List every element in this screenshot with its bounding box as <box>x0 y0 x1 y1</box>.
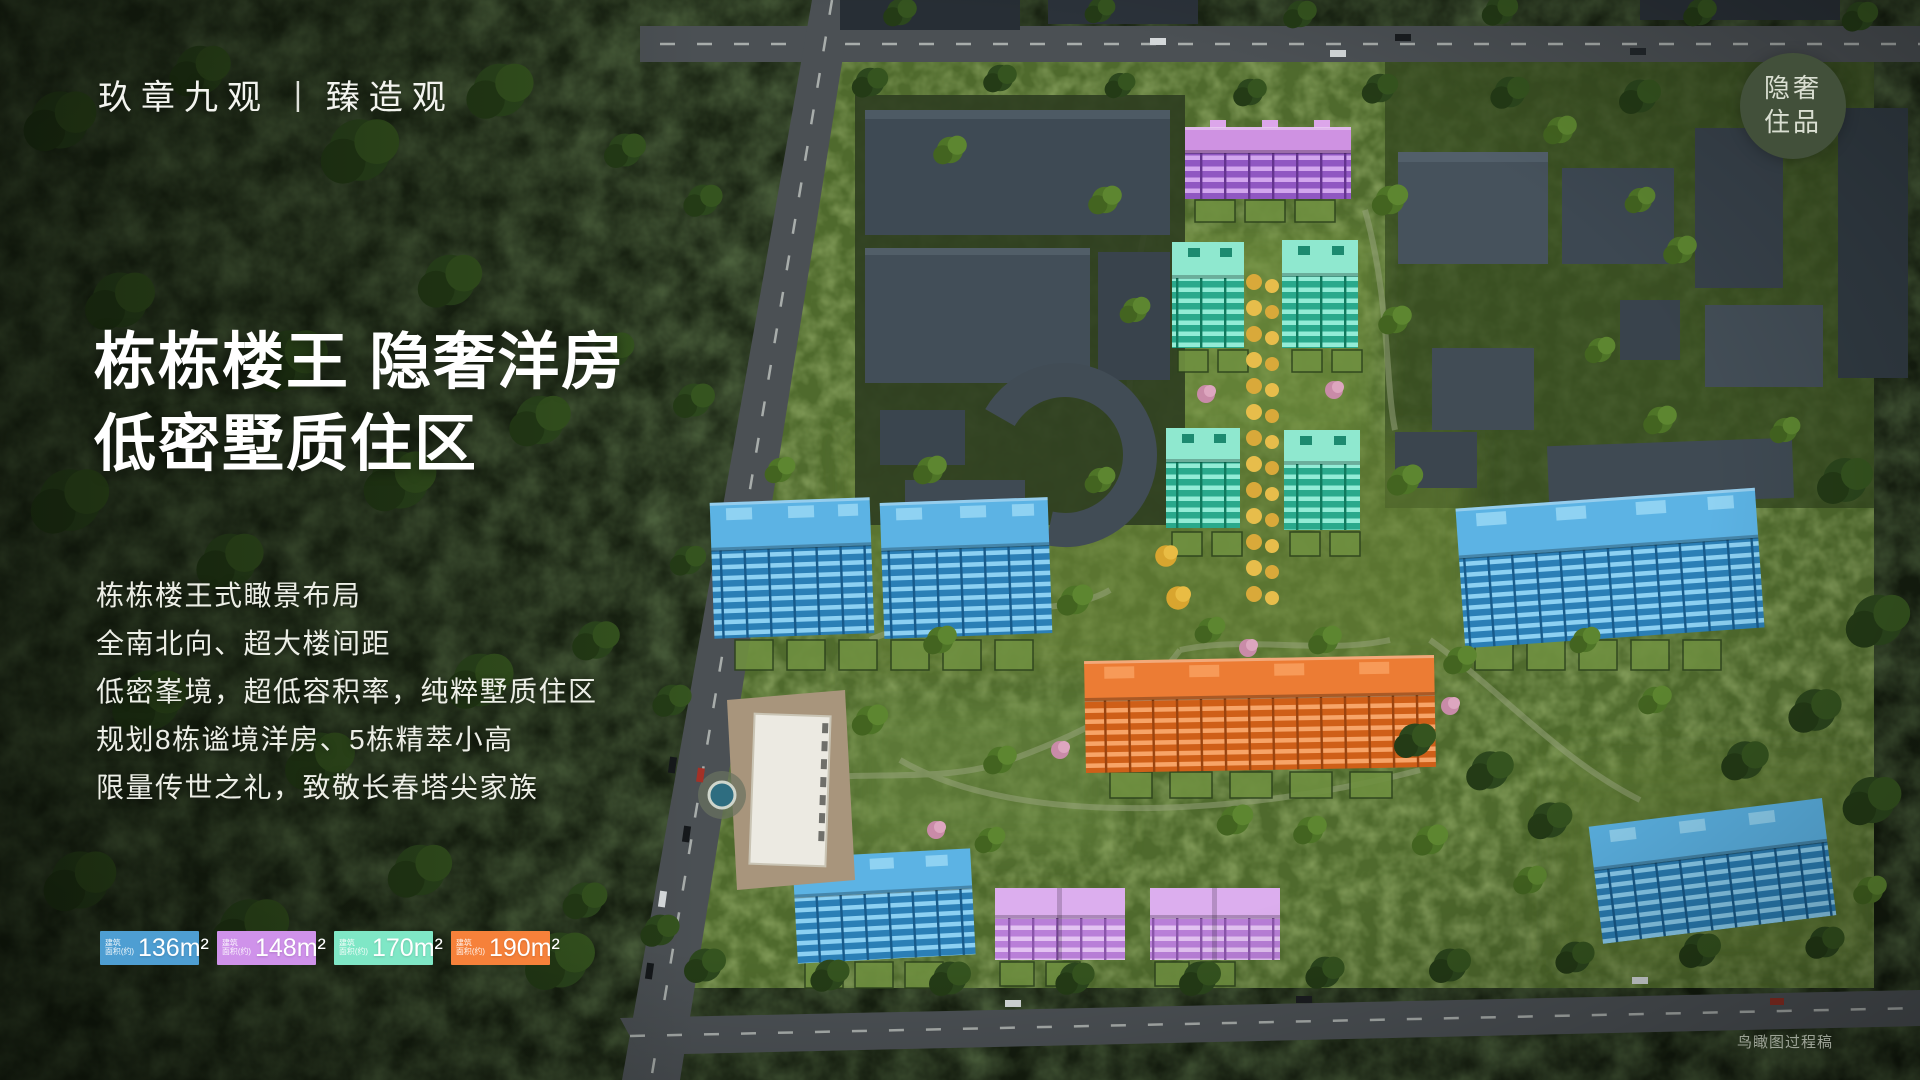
legend-item-blue-136: 建筑面积(约) 136m² <box>100 931 199 965</box>
area-legend: 建筑面积(约) 136m² 建筑面积(约) 148m² 建筑面积(约) 170m… <box>100 931 550 965</box>
legend-item-sublabel: 建筑面积(约) <box>339 939 368 956</box>
legend-item-area: 148m² <box>255 934 326 963</box>
selling-points: 栋栋楼王式瞰景布局 全南北向、超大楼间距 低密峯境，超低容积率，纯粹墅质住区 规… <box>96 572 598 812</box>
legend-item-purple-148: 建筑面积(约) 148m² <box>217 931 316 965</box>
text-shade <box>0 0 700 1080</box>
main-headline: 栋栋楼王 隐奢洋房 低密墅质住区 <box>94 322 625 486</box>
brand-title: 玖章九观 | 臻造观 <box>98 70 455 119</box>
corner-badge: 隐奢 住品 <box>1740 53 1846 159</box>
selling-point: 栋栋楼王式瞰景布局 <box>96 572 598 620</box>
legend-item-area: 170m² <box>372 934 443 963</box>
corner-badge-line1: 隐奢 <box>1764 72 1822 106</box>
legend-item-area: 190m² <box>489 934 560 963</box>
headline-line2: 低密墅质住区 <box>94 404 625 486</box>
legend-item-sublabel: 建筑面积(约) <box>456 939 485 956</box>
brand-divider: | <box>294 76 302 113</box>
legend-item-teal-170: 建筑面积(约) 170m² <box>334 931 433 965</box>
selling-point: 规划8栋谧境洋房、5栋精萃小高 <box>96 716 598 764</box>
watermark-label: 鸟瞰图过程稿 <box>1737 1031 1833 1052</box>
legend-item-sublabel: 建筑面积(约) <box>105 939 134 956</box>
selling-point: 限量传世之礼，致敬长春塔尖家族 <box>96 764 598 812</box>
headline-line1: 栋栋楼王 隐奢洋房 <box>94 322 625 404</box>
selling-point: 低密峯境，超低容积率，纯粹墅质住区 <box>96 668 598 716</box>
brand-name-left: 玖章九观 <box>98 70 270 119</box>
selling-point: 全南北向、超大楼间距 <box>96 620 598 668</box>
legend-item-sublabel: 建筑面积(约) <box>222 939 251 956</box>
corner-badge-line2: 住品 <box>1764 106 1822 140</box>
brand-name-right: 臻造观 <box>326 70 455 119</box>
legend-item-area: 136m² <box>138 934 209 963</box>
aerial-site-rendering <box>0 0 1920 1080</box>
legend-item-orange-190: 建筑面积(约) 190m² <box>451 931 550 965</box>
real-estate-hero-slide: 玖章九观 | 臻造观 隐奢 住品 栋栋楼王 隐奢洋房 低密墅质住区 栋栋楼王式瞰… <box>0 0 1920 1080</box>
